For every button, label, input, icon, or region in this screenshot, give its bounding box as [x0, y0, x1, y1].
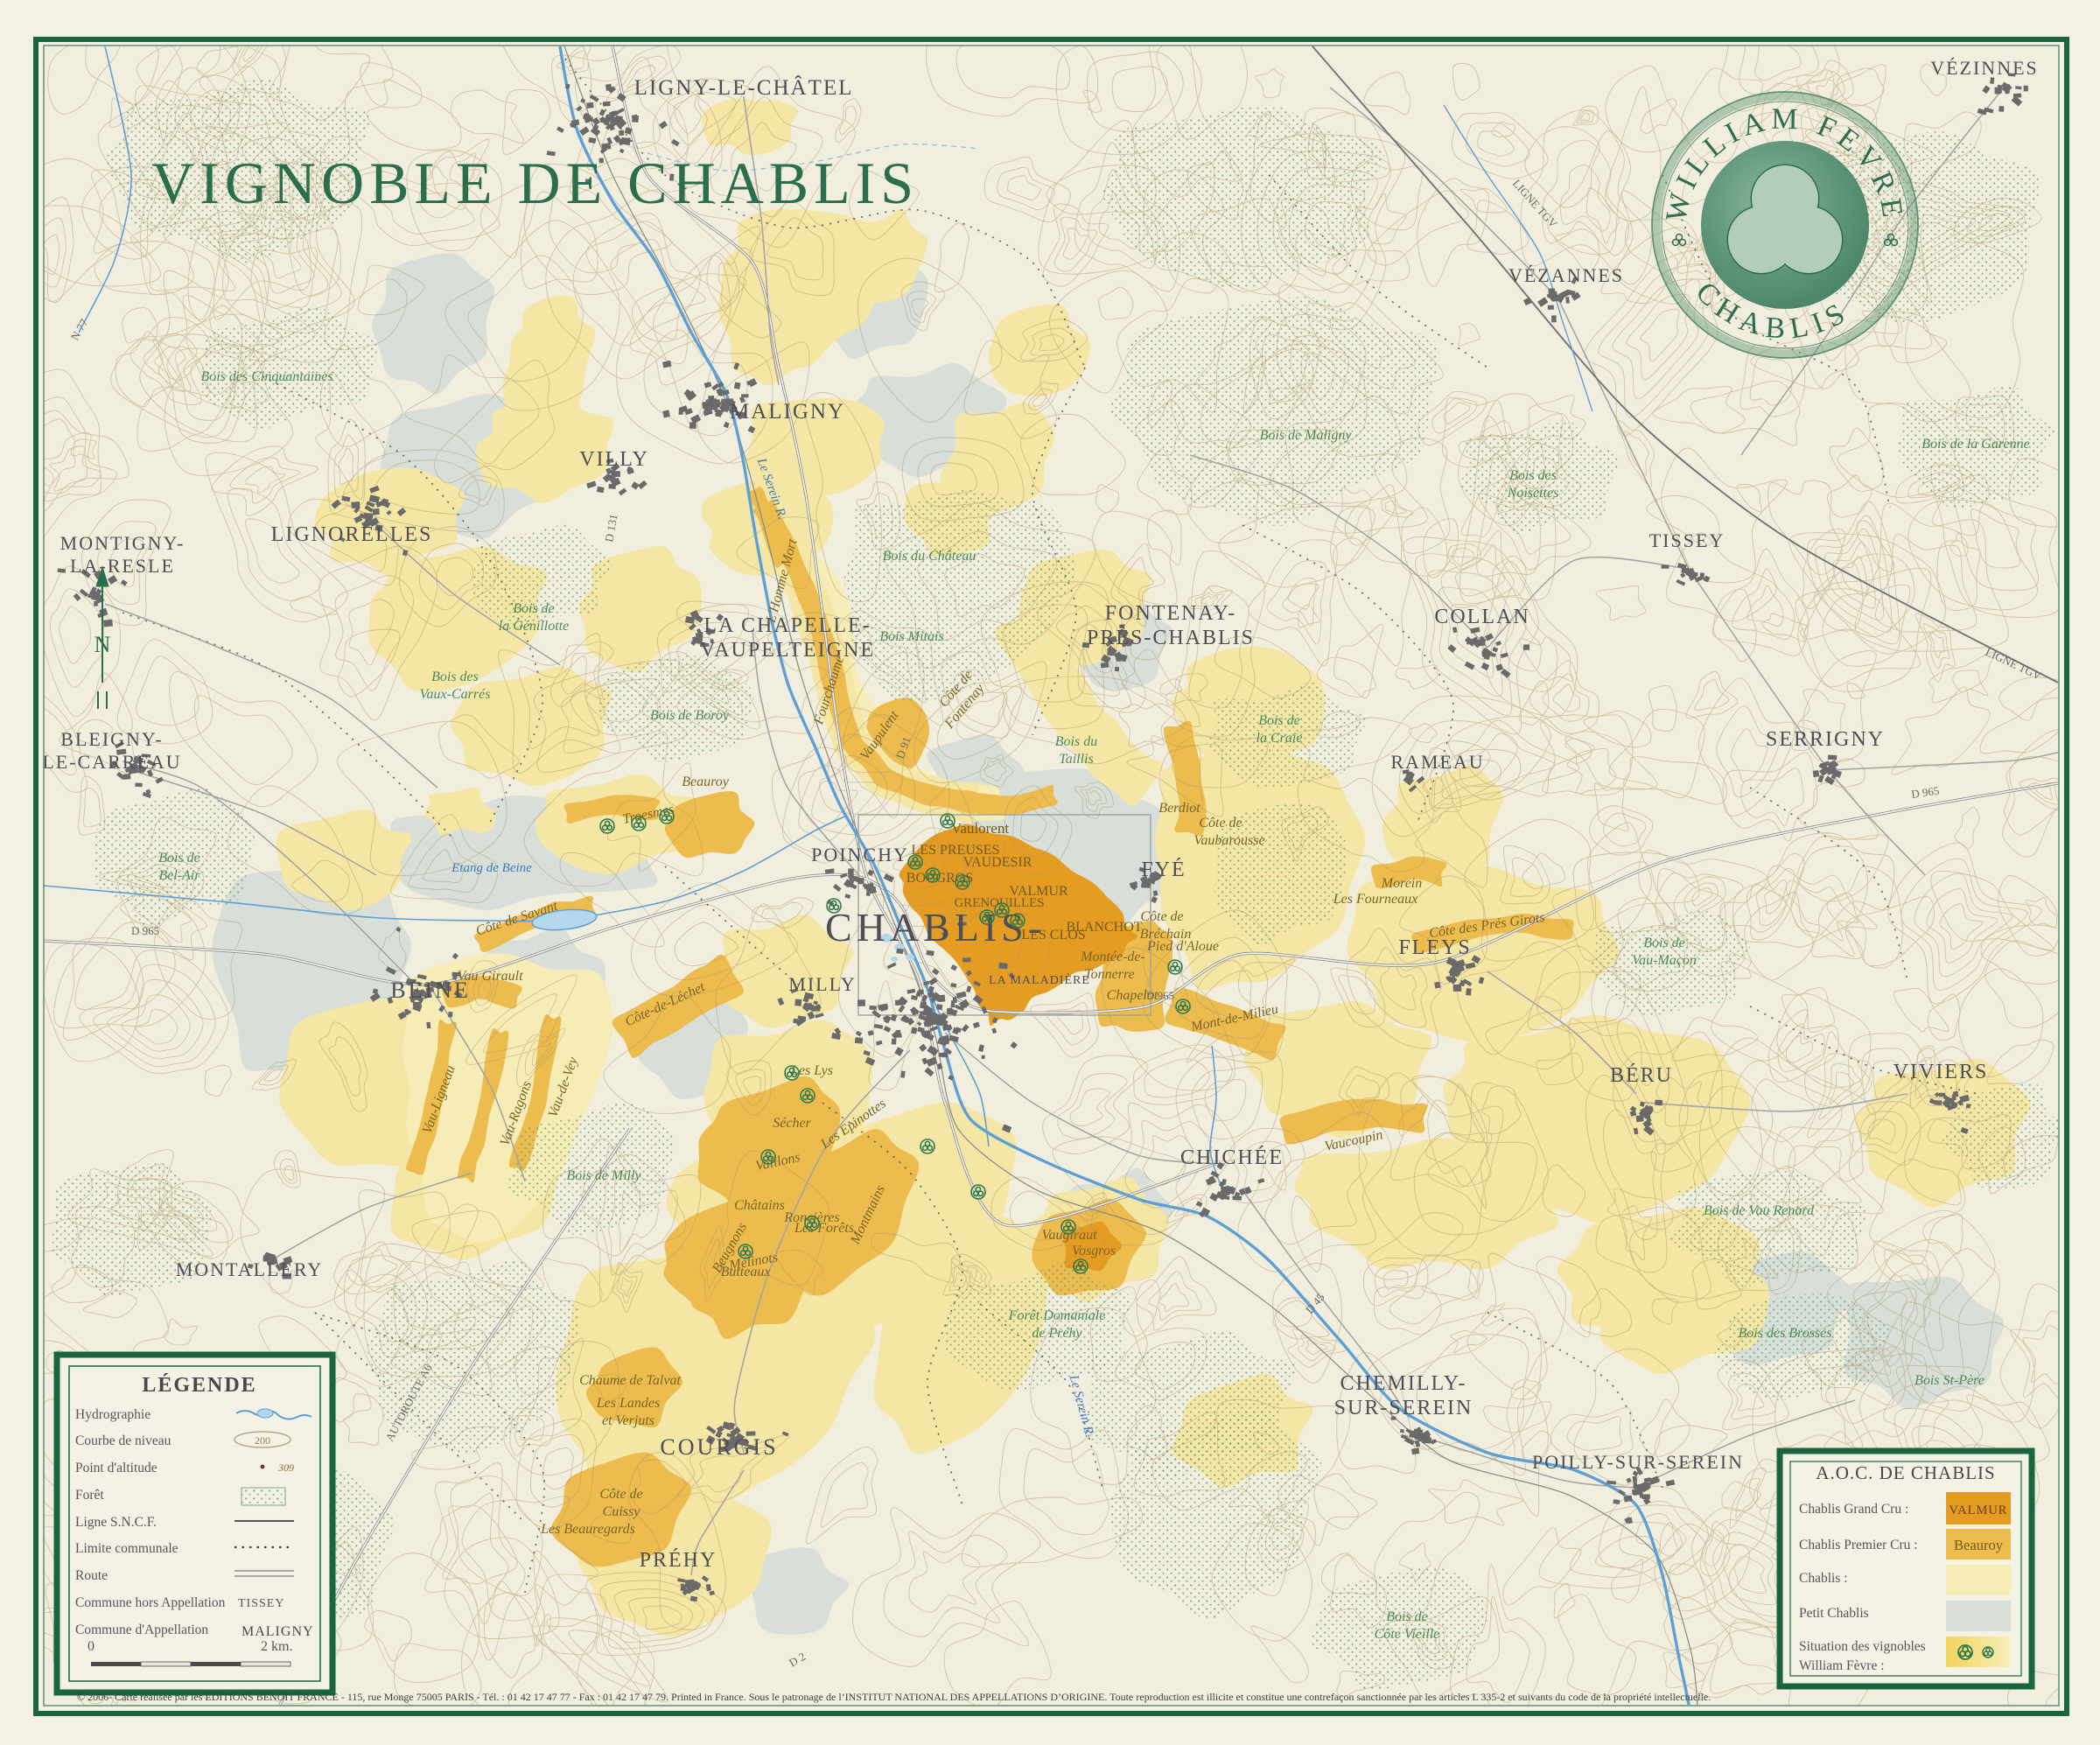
svg-text:Bois de: Bois de — [1258, 713, 1300, 728]
svg-text:Butteaux: Butteaux — [721, 1265, 771, 1279]
svg-text:Chablis :: Chablis : — [1799, 1571, 1848, 1586]
svg-text:D 965: D 965 — [1146, 989, 1174, 1002]
svg-text:VÉZANNES: VÉZANNES — [1508, 264, 1624, 286]
svg-text:Situation des vignobles: Situation des vignobles — [1799, 1639, 1926, 1654]
svg-text:VÉZINNES: VÉZINNES — [1930, 57, 2039, 79]
svg-text:BÉRU: BÉRU — [1610, 1064, 1673, 1087]
svg-text:Bois de: Bois de — [1386, 1609, 1428, 1624]
svg-text:Châtains: Châtains — [734, 1198, 785, 1213]
svg-text:SERRIGNY: SERRIGNY — [1766, 728, 1885, 751]
svg-text:PRÈS-CHABLIS: PRÈS-CHABLIS — [1087, 627, 1255, 649]
svg-text:Côte de: Côte de — [1140, 909, 1183, 924]
svg-text:Bois de la Garenne: Bois de la Garenne — [1921, 437, 2029, 452]
svg-text:Cuissy: Cuissy — [603, 1504, 641, 1519]
svg-text:0: 0 — [87, 1639, 94, 1654]
svg-text:Chablis Premier Cru :: Chablis Premier Cru : — [1799, 1538, 1918, 1552]
svg-text:Bois de Boroy: Bois de Boroy — [650, 708, 730, 723]
svg-text:Bois de Maligny: Bois de Maligny — [1260, 428, 1353, 443]
svg-text:VILLY: VILLY — [579, 448, 649, 471]
svg-text:Beauroy: Beauroy — [1954, 1537, 2004, 1553]
svg-text:VALMUR: VALMUR — [1949, 1503, 2008, 1517]
svg-text:Limite communale: Limite communale — [75, 1541, 178, 1556]
svg-text:Bois des Cinquantaines: Bois des Cinquantaines — [200, 369, 332, 384]
svg-text:Chaume de Talvat: Chaume de Talvat — [579, 1373, 681, 1388]
svg-text:Vosgros: Vosgros — [1072, 1244, 1116, 1258]
svg-text:LE-CARREAU: LE-CARREAU — [42, 751, 181, 773]
svg-text:Taillis: Taillis — [1059, 752, 1093, 767]
svg-text:Commune d'Appellation: Commune d'Appellation — [75, 1622, 208, 1637]
svg-text:Hydrographie: Hydrographie — [75, 1407, 150, 1422]
svg-text:de Préhy: de Préhy — [1032, 1326, 1082, 1341]
svg-text:Ligne S.N.C.F.: Ligne S.N.C.F. — [75, 1515, 157, 1530]
svg-text:Bois du: Bois du — [1055, 734, 1097, 749]
svg-text:Bois de: Bois de — [513, 601, 555, 616]
svg-text:Point d'altitude: Point d'altitude — [75, 1461, 157, 1475]
svg-text:Tonnerre: Tonnerre — [1084, 967, 1135, 982]
svg-text:CHICHÉE: CHICHÉE — [1180, 1146, 1284, 1169]
svg-text:PRÉHY: PRÉHY — [640, 1549, 717, 1572]
svg-text:Côte Vieille: Côte Vieille — [1375, 1627, 1440, 1642]
svg-text:N: N — [94, 632, 111, 657]
svg-text:FYÉ: FYÉ — [1141, 858, 1186, 881]
svg-text:Forêt: Forêt — [75, 1488, 104, 1503]
svg-text:COURGIS: COURGIS — [660, 1434, 778, 1460]
svg-text:BLEIGNY-: BLEIGNY- — [60, 728, 163, 750]
svg-text:Vau-Maçon: Vau-Maçon — [1632, 953, 1697, 968]
svg-text:la Craie: la Craie — [1256, 731, 1303, 746]
svg-text:Petit Chablis: Petit Chablis — [1799, 1606, 1869, 1621]
svg-text:William Fèvre :: William Fèvre : — [1799, 1658, 1885, 1673]
svg-text:LA MALADIÈRE: LA MALADIÈRE — [989, 972, 1090, 987]
svg-text:A.O.C. DE CHABLIS: A.O.C. DE CHABLIS — [1816, 1462, 1995, 1483]
svg-text:Bois de: Bois de — [1643, 936, 1685, 950]
svg-text:Route: Route — [75, 1568, 108, 1583]
svg-text:MALIGNY: MALIGNY — [241, 1624, 314, 1639]
svg-text:Commune hors Appellation: Commune hors Appellation — [75, 1595, 226, 1610]
svg-text:FONTENAY-: FONTENAY- — [1105, 602, 1236, 625]
svg-text:Berdiot: Berdiot — [1158, 801, 1200, 816]
svg-text:LA-RESLE: LA-RESLE — [70, 555, 175, 577]
svg-text:Forêt Domaniale: Forêt Domaniale — [1008, 1308, 1106, 1323]
svg-text:la Génillotte: la Génillotte — [499, 619, 569, 634]
svg-text:Bois de Milly: Bois de Milly — [566, 1168, 641, 1183]
svg-text:CHABLIS-: CHABLIS- — [825, 905, 1046, 950]
svg-text:VAUPELTEIGNE: VAUPELTEIGNE — [700, 639, 875, 662]
svg-text:Les Beauregards: Les Beauregards — [540, 1522, 635, 1537]
svg-text:VIGNOBLE DE CHABLIS: VIGNOBLE DE CHABLIS — [151, 150, 919, 216]
svg-text:Bois de Vau Renard: Bois de Vau Renard — [1704, 1203, 1815, 1218]
svg-text:Morein: Morein — [1381, 876, 1423, 891]
svg-text:Bois des Brosses: Bois des Brosses — [1739, 1326, 1832, 1341]
svg-text:Bois du Château: Bois du Château — [883, 549, 976, 564]
svg-text:MALIGNY: MALIGNY — [730, 400, 845, 424]
svg-text:D 965: D 965 — [131, 924, 159, 937]
svg-text:Noisettes: Noisettes — [1507, 486, 1559, 501]
svg-text:RAMEAU: RAMEAU — [1390, 751, 1484, 773]
svg-text:Vaulorent: Vaulorent — [951, 820, 1009, 837]
svg-text:LES CLOS: LES CLOS — [1021, 928, 1085, 943]
svg-text:Montée-de-: Montée-de- — [1080, 950, 1145, 964]
svg-text:200: 200 — [255, 1434, 270, 1447]
svg-text:Les Fourneaux: Les Fourneaux — [1333, 892, 1417, 907]
svg-text:COLLAN: COLLAN — [1434, 606, 1529, 628]
svg-text:309: 309 — [277, 1461, 294, 1474]
svg-text:et Verjuts: et Verjuts — [602, 1413, 654, 1428]
svg-text:Bel-Air: Bel-Air — [158, 868, 200, 883]
svg-text:VIVIERS: VIVIERS — [1893, 1061, 1989, 1083]
svg-text:LÉGENDE: LÉGENDE — [142, 1374, 256, 1397]
svg-text:Les Landes: Les Landes — [596, 1396, 660, 1411]
svg-text:2 km.: 2 km. — [261, 1639, 292, 1654]
svg-text:MONTALLERY: MONTALLERY — [176, 1258, 324, 1280]
svg-text:LA CHAPELLE-: LA CHAPELLE- — [703, 614, 871, 637]
svg-text:Côte de: Côte de — [599, 1487, 642, 1502]
svg-text:Bois des: Bois des — [1509, 468, 1557, 483]
svg-text:Sécher: Sécher — [773, 1116, 811, 1131]
svg-text:Pied d'Aloue: Pied d'Aloue — [1146, 939, 1219, 954]
svg-text:TISSEY: TISSEY — [1649, 529, 1725, 551]
svg-text:Bois St-Père: Bois St-Père — [1914, 1373, 1984, 1388]
svg-text:Bois des: Bois des — [431, 669, 479, 684]
svg-text:LIGNY-LE-CHÂTEL: LIGNY-LE-CHÂTEL — [634, 75, 854, 100]
svg-text:POILLY-SUR-SEREIN: POILLY-SUR-SEREIN — [1532, 1451, 1744, 1473]
svg-text:Bois Mitais: Bois Mitais — [879, 629, 943, 644]
svg-text:CHEMILLY-: CHEMILLY- — [1340, 1372, 1467, 1395]
svg-text:POINCHY: POINCHY — [811, 844, 909, 865]
svg-text:MILLY: MILLY — [788, 973, 856, 995]
svg-text:Beauroy: Beauroy — [682, 774, 730, 789]
svg-text:Courbe de niveau: Courbe de niveau — [75, 1433, 171, 1448]
svg-text:Etang de Beine: Etang de Beine — [451, 861, 532, 875]
svg-text:Vaux-Carrés: Vaux-Carrés — [420, 687, 491, 702]
svg-text:Vau Girault: Vau Girault — [457, 969, 523, 984]
svg-text:TISSEY: TISSEY — [238, 1597, 284, 1610]
svg-text:SUR-SEREIN: SUR-SEREIN — [1334, 1397, 1473, 1419]
svg-text:Bois de: Bois de — [158, 851, 200, 865]
svg-text:Les Forêts: Les Forêts — [794, 1221, 854, 1236]
svg-text:MONTIGNY-: MONTIGNY- — [60, 532, 185, 554]
svg-text:LIGNORELLES: LIGNORELLES — [271, 523, 433, 546]
svg-text:Chablis Grand Cru :: Chablis Grand Cru : — [1799, 1502, 1908, 1517]
svg-text:Vaubarousse: Vaubarousse — [1193, 833, 1264, 848]
svg-text:VAUDESIR: VAUDESIR — [963, 855, 1032, 870]
svg-text:© 2006- Carte réalisée par les: © 2006- Carte réalisée par les EDITIONS … — [77, 1691, 1711, 1703]
svg-text:Côte de: Côte de — [1199, 816, 1242, 830]
